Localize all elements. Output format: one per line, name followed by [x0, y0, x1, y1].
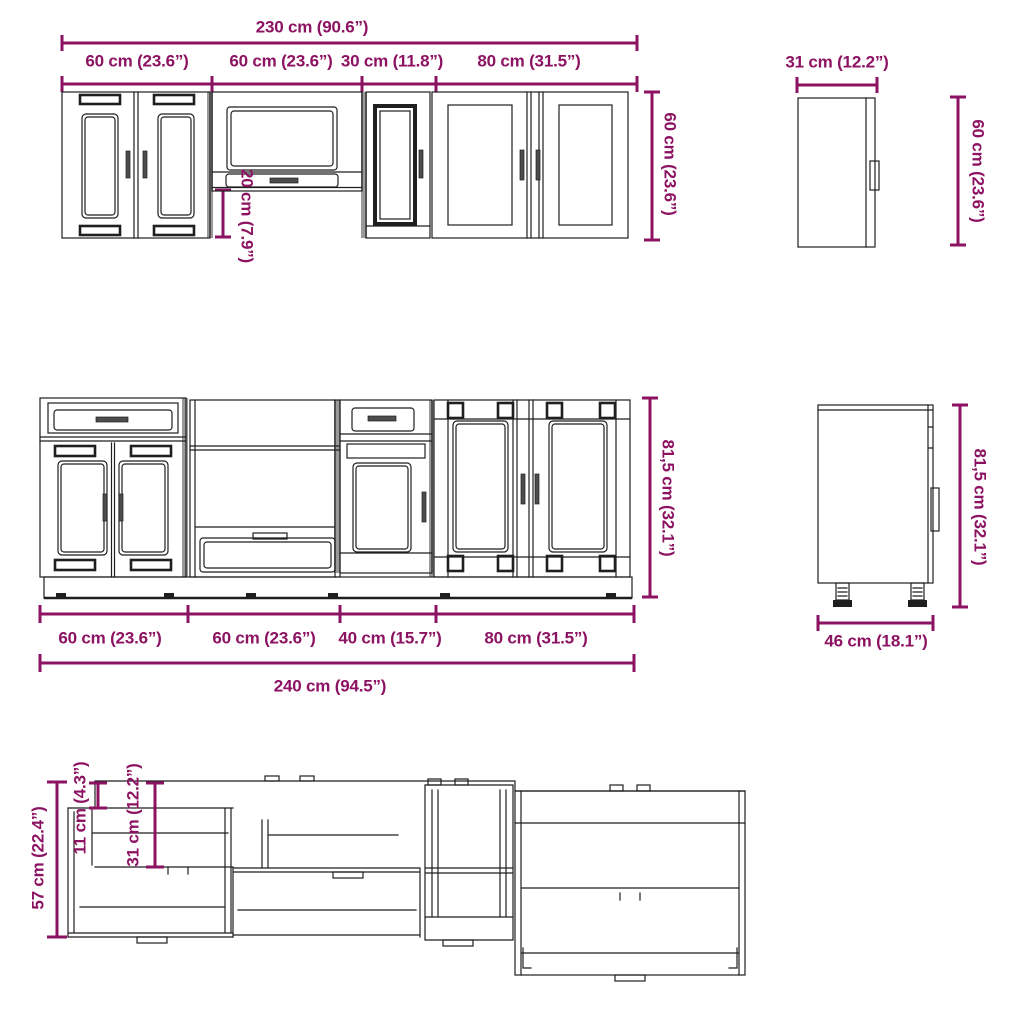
door-handle [422, 492, 426, 522]
dim-label-base-segment-3: 40 cm (15.7”) [338, 630, 441, 647]
dim-label-base-side-height: 81,5 cm (32.1”) [972, 448, 989, 565]
wall-cabinet-60-two-doors [62, 92, 210, 238]
door-handle [520, 150, 524, 180]
dim-label-perspective-opening: 31 cm (12.2”) [125, 763, 142, 866]
base-cabinet-60-drawer-two-doors [40, 398, 186, 577]
dim-label-wall-segment-1: 60 cm (23.6”) [85, 53, 188, 70]
door-handle [143, 151, 147, 178]
perspective-left-unit [68, 808, 233, 943]
dim-label-base-segment-4: 80 cm (31.5”) [484, 630, 587, 647]
drawer-handle [96, 417, 128, 422]
base-plinth [44, 577, 632, 598]
perspective-narrow-unit [425, 785, 513, 946]
adjustable-feet [833, 583, 927, 607]
dimension-diagram: 230 cm (90.6”) 60 cm (23.6”) 60 cm (23.6… [0, 0, 1024, 1024]
dim-label-base-height: 81,5 cm (32.1”) [660, 439, 677, 556]
dim-label-wall-segment-4: 80 cm (31.5”) [477, 53, 580, 70]
diagram-line-art [0, 0, 1024, 1024]
door-handle [535, 474, 539, 504]
door-handle [521, 474, 525, 504]
base-cabinet-side-drawing [818, 405, 939, 607]
dim-label-wall-height: 60 cm (23.6”) [662, 112, 679, 215]
perspective-dimension-lines [47, 782, 164, 937]
dim-label-wall-side-depth: 31 cm (12.2”) [785, 54, 888, 71]
base-run-front-drawing [40, 398, 632, 598]
base-side-dimension-lines [818, 405, 968, 631]
dim-label-base-total-width: 240 cm (94.5”) [274, 678, 387, 695]
flap-handle [270, 178, 298, 183]
dim-label-wall-underhang: 20 cm (7.9”) [239, 169, 256, 263]
dim-label-perspective-back-rail: 11 cm (4.3”) [72, 761, 89, 854]
perspective-wide-unit [515, 791, 745, 981]
base-cabinet-60-oven-housing [190, 400, 340, 577]
door-handle [536, 150, 540, 180]
dim-label-wall-side-height: 60 cm (23.6”) [970, 119, 987, 222]
dim-label-wall-segment-2: 60 cm (23.6”) [229, 53, 332, 70]
perspective-drawing [68, 776, 745, 981]
wall-cabinet-30-glass [366, 92, 430, 238]
door-handle [103, 494, 107, 521]
wall-cabinet-60-flap [212, 92, 362, 191]
wall-cabinet-80-two-doors [432, 92, 628, 238]
dim-label-base-segment-1: 60 cm (23.6”) [58, 630, 161, 647]
wall-cabinet-side-drawing [798, 98, 879, 247]
dim-label-perspective-height: 57 cm (22.4”) [30, 806, 47, 909]
base-cabinet-80-two-doors [434, 400, 630, 577]
dim-label-base-side-depth: 46 cm (18.1”) [824, 633, 927, 650]
drawer-handle [368, 416, 396, 421]
dim-label-wall-segment-3: 30 cm (11.8”) [341, 53, 443, 70]
door-handle [119, 494, 123, 521]
wall-run-front-drawing [62, 92, 628, 238]
door-handle [126, 151, 130, 178]
dim-label-base-segment-2: 60 cm (23.6”) [212, 630, 315, 647]
base-cabinet-40-drawer-door [340, 400, 432, 573]
wall-side-dimension-lines [797, 77, 966, 245]
door-handle [419, 150, 423, 178]
dim-label-wall-total-width: 230 cm (90.6”) [256, 19, 369, 36]
perspective-oven-unit [233, 820, 420, 937]
